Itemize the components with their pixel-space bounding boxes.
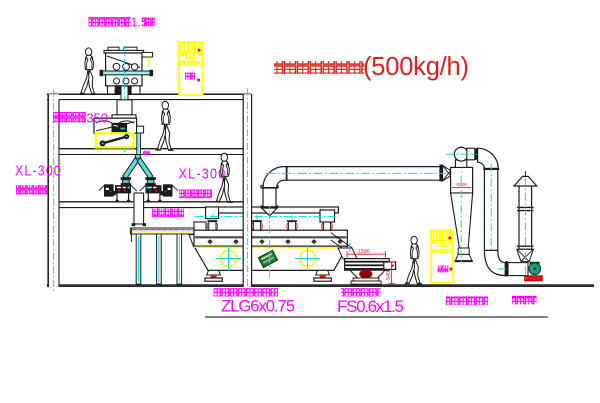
svg-text:XL-300: XL-300 [15, 163, 62, 180]
svg-text:1500: 1500 [358, 249, 370, 255]
svg-text:Φ500: Φ500 [456, 182, 467, 187]
svg-text:350: 350 [87, 110, 108, 125]
svg-text:XL-300: XL-300 [179, 166, 227, 183]
svg-text:540: 540 [386, 271, 392, 280]
svg-text:FS0.6x1.5: FS0.6x1.5 [337, 297, 404, 316]
svg-text:ZLG6x0.75: ZLG6x0.75 [221, 298, 295, 316]
svg-text:(500kg/h): (500kg/h) [363, 53, 469, 81]
